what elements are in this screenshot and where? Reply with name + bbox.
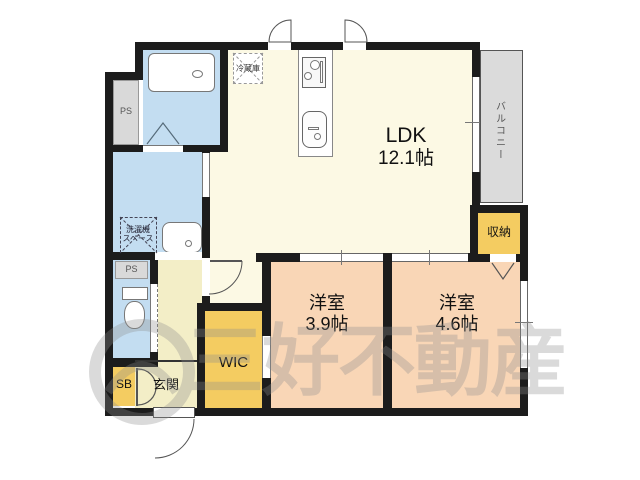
wall [470, 205, 528, 213]
door-gap-storage [490, 254, 516, 262]
bedroom-46-size: 4.6帖 [412, 314, 502, 335]
ldk-name: LDK [360, 124, 452, 148]
sliding-door-wic [262, 336, 271, 378]
wall [197, 311, 205, 416]
toilet-bowl [124, 301, 145, 329]
room-ldk-west [210, 152, 228, 253]
bathtub [148, 53, 215, 92]
door-toilet [150, 284, 158, 352]
window-tick [465, 122, 480, 123]
label-shoebox: SB [110, 378, 138, 392]
door-gap-bathroom [143, 145, 183, 152]
wall [291, 42, 343, 50]
toilet-tank [122, 287, 148, 300]
floor-plan: LDK 12.1帖 洋室 3.9帖 洋室 4.6帖 バルコニー 収納 WIC 玄… [0, 0, 640, 480]
label-bedroom-46: 洋室 4.6帖 [412, 293, 502, 334]
bathtub-drain [192, 70, 203, 78]
sliding-door-bedroom-46 [392, 253, 468, 262]
room-bedroom-46 [392, 262, 520, 408]
door-swing-north-2 [345, 20, 367, 42]
room-bedroom-39 [271, 262, 383, 408]
stove-burner-small [304, 72, 312, 80]
wall [195, 408, 528, 416]
wall [135, 42, 228, 50]
label-bedroom-39: 洋室 3.9帖 [282, 293, 372, 334]
wall [262, 253, 271, 336]
label-laundry: 洗濯機 スペース [117, 225, 159, 243]
window-bedroom-46 [520, 281, 528, 368]
label-fridge: 冷蔵庫 [233, 64, 263, 73]
bedroom-46-name: 洋室 [412, 293, 502, 314]
stove-grill-bar [320, 61, 323, 83]
wall [262, 378, 271, 416]
genkan-step-line [135, 360, 197, 362]
sliding-door-washroom [202, 153, 210, 197]
bedroom-39-size: 3.9帖 [282, 314, 372, 335]
label-balcony: バルコニー [493, 76, 505, 186]
label-genkan: 玄関 [135, 378, 197, 393]
window-tick [515, 322, 533, 323]
entrance-door-leaf [153, 407, 195, 418]
label-ldk: LDK 12.1帖 [360, 124, 452, 170]
wall [520, 205, 528, 281]
wall [520, 368, 528, 416]
laundry-line2: スペース [117, 234, 159, 243]
sink-drain [314, 133, 321, 140]
wall [472, 42, 480, 77]
wall [105, 145, 143, 152]
door-tick [341, 250, 342, 265]
door-gap-north-2 [343, 42, 366, 50]
wall [150, 260, 158, 284]
laundry-line1: 洗濯機 [117, 225, 159, 234]
label-wic: WIC [205, 354, 262, 371]
stove-burner-large [310, 60, 320, 70]
door-gap-hall-ldk [202, 258, 210, 296]
wall [468, 253, 478, 262]
wall [228, 42, 268, 50]
wall [202, 197, 210, 258]
label-ps-bottom: PS [115, 264, 148, 274]
wall [105, 408, 153, 416]
washbasin [162, 222, 202, 253]
wall [105, 252, 155, 260]
label-ps-top: PS [113, 106, 139, 116]
door-gap-north-1 [268, 42, 291, 50]
door-swing-north-1 [269, 20, 291, 42]
window-balcony [472, 77, 480, 172]
wall [383, 253, 392, 416]
sink-faucet-bar [308, 127, 319, 130]
door-arc-entrance [155, 419, 194, 458]
wall [220, 42, 228, 152]
bedroom-39-name: 洋室 [282, 293, 372, 314]
wall [366, 42, 480, 50]
label-storage: 収納 [478, 226, 520, 240]
wall [197, 303, 271, 311]
door-leaf-hall-ldk [210, 260, 242, 262]
opening-washroom-hall [155, 252, 200, 260]
washbasin-faucet [185, 240, 192, 247]
wall [516, 254, 528, 262]
ldk-size: 12.1帖 [360, 148, 452, 170]
door-tick [429, 250, 430, 265]
wall [202, 145, 210, 153]
